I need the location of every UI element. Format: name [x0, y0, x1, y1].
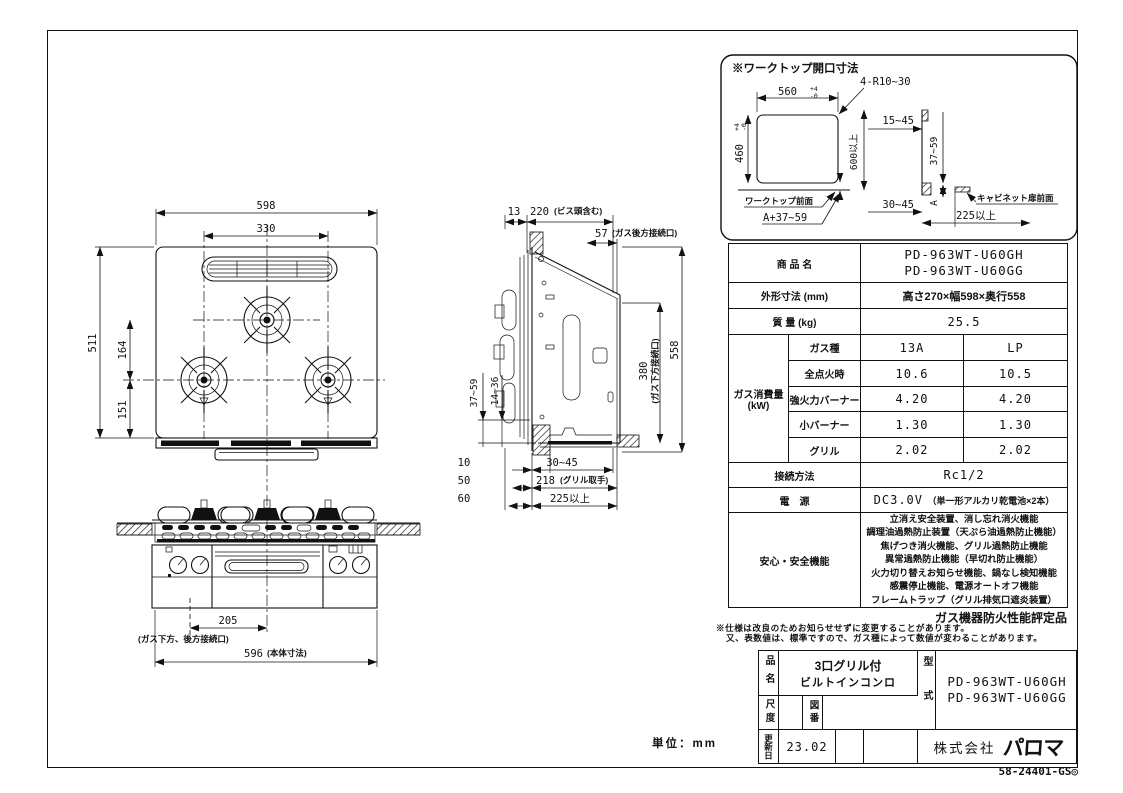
spec-notes: ※仕様は改良のためお知らせせずに変更することがあります。 又、表数値は、標準です… — [716, 624, 1080, 643]
spec-weight-value: 25.5 — [861, 309, 1068, 335]
spec-power-label: 電 源 — [729, 488, 861, 513]
spec-small-label: 小バーナー — [789, 412, 861, 438]
front-edge-strip — [156, 438, 377, 460]
titleblock-updated-value: 23.02 — [786, 740, 827, 754]
spec-small-13a: 1.30 — [861, 412, 964, 438]
titleblock-drawingno-value — [823, 696, 918, 730]
spec-highcal-lp: 4.20 — [964, 387, 1068, 412]
dim-opening-depth: 460 — [734, 144, 746, 163]
spec-allburn-label: 全点火時 — [789, 361, 861, 387]
dim-range-37-59: 37~59 — [469, 378, 480, 407]
dim-body-width-note: (本体寸法) — [267, 648, 307, 658]
document-number: 58-24401-GS◎ — [940, 765, 1078, 778]
spec-safety-value: 立消え安全装置、消し忘れ消火機能 調理油過熱防止装置（天ぷら油過熱防止機能） 焦… — [861, 513, 1068, 608]
dim-opening-width: 560 — [778, 86, 797, 98]
side-view-drawing: 13 220 (ビス頭含む) 57 (ガス後方接続口) 558 380 (ガス下… — [450, 195, 730, 515]
spec-dims-label: 外形寸法 (mm) — [729, 283, 861, 309]
dim-60: 60 — [458, 493, 471, 505]
spec-product-value: PD-963WT-U60GH PD-963WT-U60GG — [861, 244, 1068, 283]
spec-grill-label: グリル — [789, 438, 861, 463]
spec-connection-value: Rc1/2 — [861, 463, 1068, 488]
spec-product-label: 商 品 名 — [729, 244, 861, 283]
side-view-body — [494, 252, 620, 447]
side-view-counter — [528, 232, 639, 455]
spec-small-lp: 1.30 — [964, 412, 1068, 438]
spec-safety-label: 安心・安全機能 — [729, 513, 861, 608]
safety-line: 立消え安全装置、消し忘れ消火機能 — [861, 513, 1067, 526]
safety-line: 焦げつき消火機能、グリル過熱防止機能 — [861, 540, 1067, 553]
spec-highcal-label: 強火力バーナー — [789, 387, 861, 412]
spec-gastype-13a: 13A — [861, 335, 964, 361]
spec-table: 商 品 名 PD-963WT-U60GH PD-963WT-U60GG 外形寸法… — [728, 243, 1068, 608]
dim-30-45: 30~45 — [546, 457, 578, 469]
dim-a-plus-range: A+37~59 — [763, 212, 807, 224]
spec-grill-lp: 2.02 — [964, 438, 1068, 463]
dim-a-label: A — [929, 200, 940, 206]
dim-opening-width-tolminus: -0 — [810, 92, 818, 100]
safety-line: 異常過熱防止機能（早切れ防止機能） — [861, 553, 1067, 566]
dim-218-note: (グリル取手) — [560, 475, 608, 485]
spec-gastype-lp: LP — [964, 335, 1068, 361]
left-knobs — [166, 547, 209, 577]
spec-gas-label-line2: (kW) — [729, 401, 788, 412]
company-prefix: 株式会社 — [934, 737, 996, 757]
dim-under-counter: 220 — [530, 206, 549, 218]
titleblock-updated-label: 更新日 — [763, 734, 775, 760]
dim-top-depth: 511 — [87, 334, 99, 353]
dim-225-min: 225以上 — [956, 210, 996, 222]
dim-gas-rear: 57 — [595, 228, 608, 240]
title-block: 品名 3口グリル付 ビルトインコンロ 型式 PD-963WT-U60GH PD-… — [758, 650, 1077, 764]
spec-gastype-label: ガス種 — [789, 335, 861, 361]
spec-dims-value: 高さ270×幅598×奥行558 — [861, 283, 1068, 309]
spec-product-line2: PD-963WT-U60GG — [861, 263, 1067, 279]
right-knobs — [329, 545, 370, 574]
dim-gas-bottom: 380 — [638, 362, 650, 381]
spec-product-line1: PD-963WT-U60GH — [861, 247, 1067, 263]
spec-power-value: DC3.0V （単一形アルカリ乾電池×2本） — [861, 488, 1068, 513]
dim-opening-depth-tolminus: -0 — [740, 123, 748, 131]
top-view-drawing: 598 330 511 164 151 — [85, 183, 460, 495]
titleblock-name-line1: 3口グリル付 — [815, 657, 882, 674]
side-view-dimensions: 13 220 (ビス頭含む) 57 (ガス後方接続口) 558 380 (ガス下… — [458, 206, 682, 510]
front-body — [152, 545, 377, 608]
dim-burner-span: 330 — [257, 223, 276, 235]
dim-range-14-36: 14~36 — [490, 376, 501, 405]
spec-gas-label: ガス消費量 (kW) — [729, 335, 789, 463]
titleblock-model-line2: PD-963WT-U60GG — [947, 690, 1066, 706]
titleblock-name-label: 品名 — [761, 655, 776, 691]
spec-highcal-13a: 4.20 — [861, 387, 964, 412]
dim-gas-bottom-note: (ガス下方接続口) — [650, 338, 660, 403]
worktop-opening-panel: ※ワークトップ開口寸法 560 +4 -0 460 +4 -0 4-R10~30… — [718, 52, 1080, 249]
front-view-drawing: 205 (ガス下方、後方接続口) 596 (本体寸法) — [100, 495, 450, 675]
spec-allburn-13a: 10.6 — [861, 361, 964, 387]
spec-power-note: （単一形アルカリ乾電池×2本） — [927, 496, 1054, 506]
dim-218: 218 — [536, 475, 555, 487]
paloma-logo: パロマ — [1001, 732, 1063, 762]
dim-under-counter-note: (ビス頭含む) — [554, 206, 602, 216]
spec-note2: 又、表数値は、標準ですので、ガス種によって数値が変わることがあります。 — [716, 634, 1080, 644]
dim-gas-rear-note: (ガス後方接続口) — [612, 228, 677, 238]
spec-gas-label-line1: ガス消費量 — [729, 386, 788, 401]
dim-front-to-edge: 151 — [117, 401, 129, 420]
spec-weight-label: 質 量 (kg) — [729, 309, 861, 335]
safety-line: 火力切り替えお知らせ機能、鍋なし検知機能 — [861, 567, 1067, 580]
dim-corner-radius: 4-R10~30 — [860, 76, 911, 88]
dim-225min: 225以上 — [550, 493, 590, 505]
dim-10: 10 — [458, 457, 471, 469]
spec-allburn-lp: 10.5 — [964, 361, 1068, 387]
safety-line: 感震停止機能、電源オートオフ機能 — [861, 580, 1067, 593]
drawing-sheet: 598 330 511 164 151 — [0, 0, 1123, 793]
dim-50: 50 — [458, 475, 471, 487]
dim-15-45: 15~45 — [882, 115, 914, 127]
safety-line: 調理油過熱防止装置（天ぷら油過熱防止機能） — [861, 526, 1067, 539]
titleblock-blank2 — [864, 730, 918, 763]
dim-37-59: 37~59 — [929, 136, 940, 165]
worktop-side-detail: 15~45 37~59 A 30~45 キャビネット扉前面 225以上 — [868, 110, 1058, 227]
dim-gas-offset-note: (ガス下方、後方接続口) — [138, 634, 229, 644]
titleblock-drawingno-label: 図番 — [806, 700, 820, 725]
titleblock-scale-label: 尺度 — [762, 699, 776, 726]
worktop-title: ※ワークトップ開口寸法 — [732, 61, 859, 75]
dim-top-width: 598 — [257, 200, 276, 212]
dim-side-depth: 558 — [669, 341, 681, 360]
spec-power-main: DC3.0V — [874, 493, 923, 507]
titleblock-model-label: 型式 — [919, 656, 934, 724]
unit-label: 単位：mm — [652, 735, 717, 751]
dim-back-to-front: 164 — [117, 341, 129, 360]
cabinet-front-label: キャビネット扉前面 — [977, 193, 1054, 203]
titleblock-scale-value — [779, 696, 803, 730]
titleblock-model-line1: PD-963WT-U60GH — [947, 674, 1066, 690]
dim-body-width: 596 — [244, 648, 263, 660]
dim-gas-offset: 205 — [219, 615, 238, 627]
safety-line: フレームトラップ（グリル排気口遮炎装置） — [861, 594, 1067, 607]
spec-connection-label: 接続方法 — [729, 463, 861, 488]
dim-30-45: 30~45 — [882, 199, 914, 211]
dim-top-plate: 13 — [508, 206, 521, 218]
titleblock-blank1 — [836, 730, 864, 763]
spec-grill-13a: 2.02 — [861, 438, 964, 463]
titleblock-name-line2: ビルトインコンロ — [800, 674, 896, 690]
worktop-front-label: ワークトップ前面 — [745, 196, 814, 206]
dim-depth-min: 600以上 — [849, 133, 860, 170]
